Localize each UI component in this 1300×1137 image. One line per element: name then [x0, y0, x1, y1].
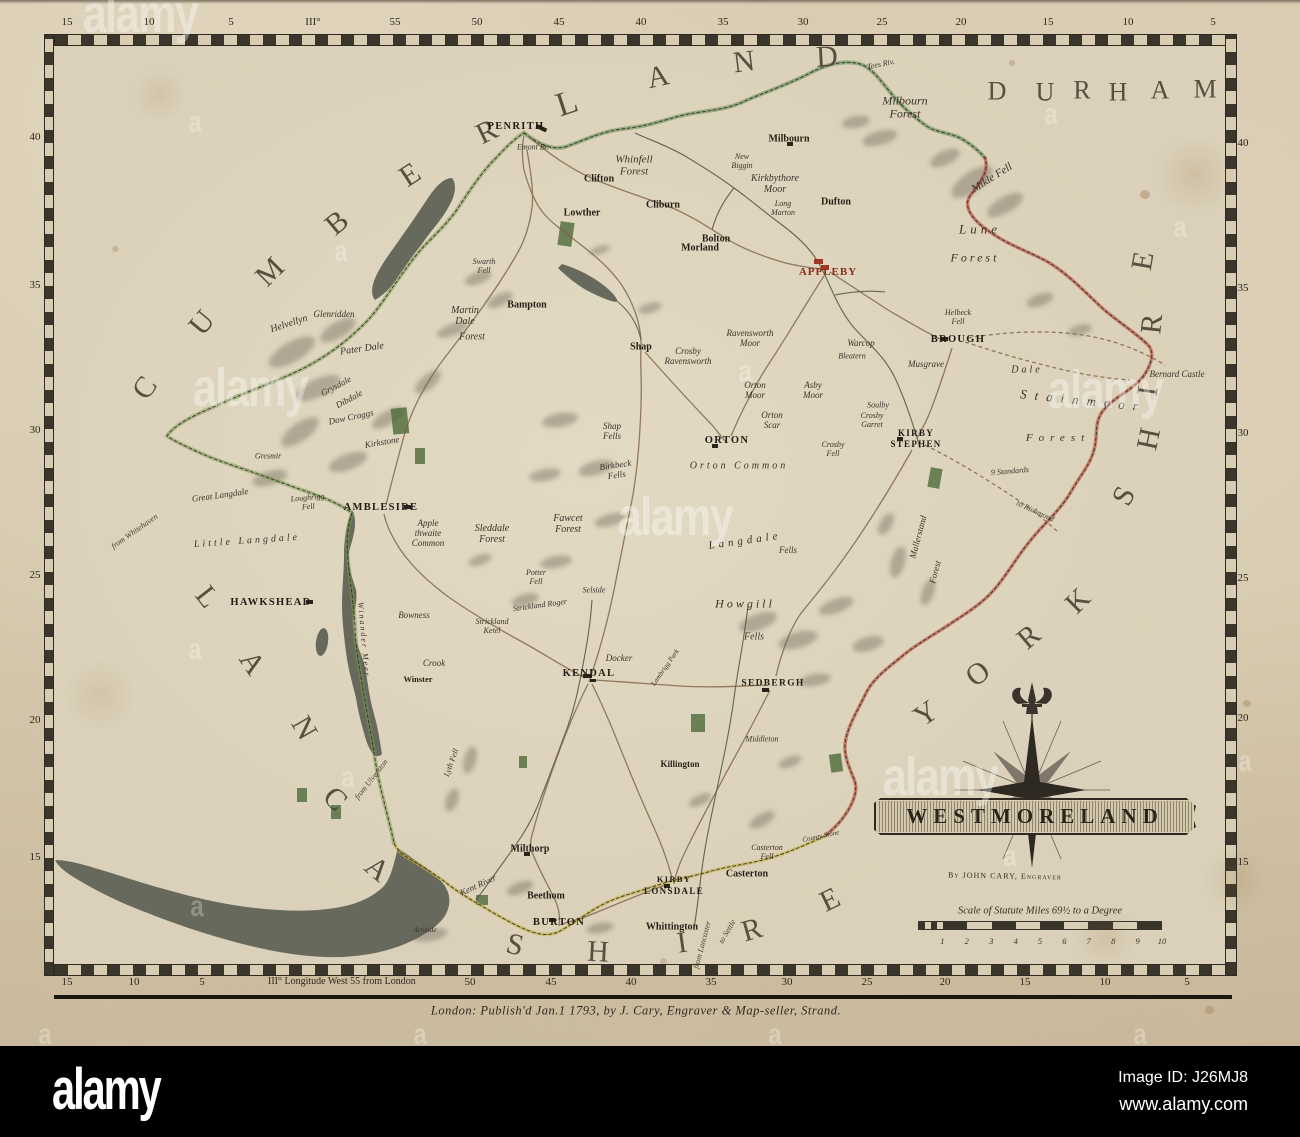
- graticule-label: 15: [62, 976, 73, 988]
- graticule-label: 20: [1238, 712, 1249, 724]
- graticule-label: 30: [30, 424, 41, 436]
- graticule-label: 45: [554, 16, 565, 28]
- graticule-label: 10: [1100, 976, 1111, 988]
- scale-segment: [919, 922, 943, 929]
- graticule-label: 15: [1238, 856, 1249, 868]
- graticule-label: 15: [62, 16, 73, 28]
- graticule-label: 5: [1210, 16, 1216, 28]
- scale-segment: [1040, 922, 1064, 929]
- graticule-label: 25: [862, 976, 873, 988]
- scale-segment: [1016, 922, 1040, 929]
- scale-number: 4: [1013, 936, 1017, 946]
- scale-number: 3: [989, 936, 993, 946]
- scale-number: 1: [940, 936, 944, 946]
- scale-bar: [918, 921, 1162, 930]
- graticule-label: 45: [546, 976, 557, 988]
- graticule-label: 25: [1238, 572, 1249, 584]
- map-title: WESTMORELAND: [906, 804, 1164, 829]
- graticule-label: 40: [30, 131, 41, 143]
- scale-segment: [1064, 922, 1088, 929]
- graticule-band-left: [44, 34, 54, 976]
- graticule-band-top: [54, 34, 1226, 46]
- graticule-label: 50: [465, 976, 476, 988]
- graticule-label: 50: [472, 16, 483, 28]
- alamy-info-bar: alamy Image ID: J26MJ8 www.alamy.com: [0, 1046, 1300, 1137]
- graticule-label: 5: [1184, 976, 1190, 988]
- scale-number: 7: [1087, 936, 1091, 946]
- graticule-label: 20: [956, 16, 967, 28]
- graticule-label: 5: [228, 16, 234, 28]
- graticule-label: 10: [144, 16, 155, 28]
- graticule-label: 55: [390, 16, 401, 28]
- graticule-band-bottom: [54, 964, 1226, 976]
- scale-segment: [967, 922, 991, 929]
- graticule-label: 10: [1123, 16, 1134, 28]
- scale-number: 6: [1062, 936, 1066, 946]
- alamy-logo[interactable]: alamy: [52, 1055, 160, 1122]
- scale-caption: Scale of Statute Miles 69½ to a Degree: [958, 906, 1122, 917]
- scale-number: 9: [1135, 936, 1139, 946]
- sheet-edge: [0, 0, 1300, 4]
- stock-photo-page: III° Longitude West 55 from London CUMBE…: [0, 0, 1300, 1137]
- graticule-label: 40: [1238, 137, 1249, 149]
- graticule-label: 10: [129, 976, 140, 988]
- image-id-text: Image ID: J26MJ8: [1118, 1069, 1248, 1087]
- plate-rule: [54, 995, 1232, 999]
- graticule-label: 15: [30, 851, 41, 863]
- graticule-label: 25: [30, 569, 41, 581]
- graticule-label: 40: [626, 976, 637, 988]
- scale-segment: [1137, 922, 1161, 929]
- graticule-band-right: [1225, 34, 1237, 976]
- graticule-label: 30: [1238, 427, 1249, 439]
- scale-segment: [1113, 922, 1137, 929]
- scale-number: 5: [1038, 936, 1042, 946]
- graticule-label: III°: [305, 16, 320, 28]
- scale-segment: [992, 922, 1016, 929]
- scale-segment: [1088, 922, 1112, 929]
- publication-imprint: London: Publish'd Jan.1 1793, by J. Cary…: [431, 1004, 841, 1019]
- longitude-note: III° Longitude West 55 from London: [268, 976, 416, 987]
- alamy-url[interactable]: www.alamy.com: [1118, 1094, 1248, 1115]
- graticule-label: 35: [706, 976, 717, 988]
- graticule-label: 30: [782, 976, 793, 988]
- graticule-label: 30: [798, 16, 809, 28]
- graticule-label: 25: [877, 16, 888, 28]
- graticule-label: 15: [1020, 976, 1031, 988]
- scale-number: 10: [1158, 936, 1167, 946]
- graticule-label: 15: [1043, 16, 1054, 28]
- scale-number: 2: [965, 936, 969, 946]
- graticule-label: 5: [199, 976, 205, 988]
- title-cartouche: WESTMORELAND: [874, 798, 1196, 835]
- scale-number: 8: [1111, 936, 1115, 946]
- graticule-label: 35: [718, 16, 729, 28]
- scale-segment: [943, 922, 967, 929]
- graticule-label: 20: [940, 976, 951, 988]
- graticule-label: 35: [1238, 282, 1249, 294]
- graticule-label: 20: [30, 714, 41, 726]
- graticule-label: 35: [30, 279, 41, 291]
- graticule-label: 40: [636, 16, 647, 28]
